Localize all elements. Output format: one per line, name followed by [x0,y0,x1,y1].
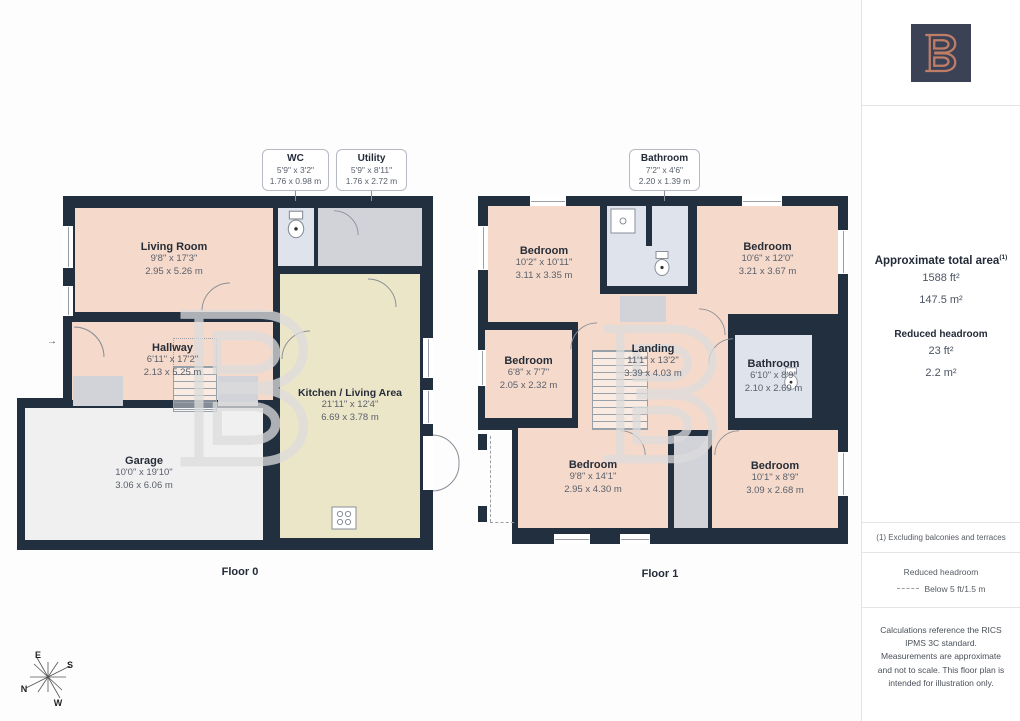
toilet-icon [652,250,672,278]
window [838,452,848,496]
reduced-headroom-m: 2.2 m² [862,362,1020,384]
floor0-label: Floor 0 [180,566,300,578]
callout-bathroom: Bathroom 7'2" x 4'6" 2.20 x 1.39 m [629,149,700,191]
callout-dims-metric: 1.76 x 2.72 m [346,176,398,187]
room-dims-metric: 3.06 x 6.06 m [115,480,173,493]
disclaimer: Calculations reference the RICS IPMS 3C … [862,608,1020,706]
room-name: Bathroom [745,358,803,370]
callout-wc: WC 5'9" x 3'2" 1.76 x 0.98 m [262,149,329,191]
double-door-arc [432,434,460,492]
room-bedroom-3: Bedroom 6'8" x 7'7" 2.05 x 2.32 m [485,330,572,418]
floor1-plan: Bedroom 10'2" x 10'11" 3.11 x 3.35 m Bed… [470,190,860,562]
room-dims-imperial: 9'8" x 17'3" [141,253,208,266]
room-name: Landing [624,343,682,355]
room-dims-metric: 3.21 x 3.67 m [739,266,797,279]
legend-text: Below 5 ft/1.5 m [925,584,986,594]
window [63,226,73,268]
logo-section [862,0,1020,106]
closet [73,376,123,406]
compass-n: N [21,684,28,694]
compass-w: W [54,698,63,708]
brand-logo [911,24,971,82]
window [63,286,73,316]
room-dims-metric: 2.95 x 5.26 m [141,266,208,279]
floor0-plan: Living Room 9'8" x 17'3" 2.95 x 5.26 m H… [15,190,460,562]
room-dims-metric: 3.09 x 2.68 m [746,485,804,498]
callout-dims-imperial: 5'9" x 8'11" [351,165,392,176]
callout-dims-metric: 1.76 x 0.98 m [270,176,322,187]
room-dims-metric: 6.69 x 3.78 m [298,412,402,425]
brand-logo-icon [923,32,959,74]
window [423,390,433,424]
room-dims-metric: 2.10 x 2.69 m [745,383,803,396]
room-dims-metric: 3.39 x 4.03 m [624,368,682,381]
reduced-headroom-legend: Reduced headroom Below 5 ft/1.5 m [862,553,1020,608]
room-name: Kitchen / Living Area [298,387,402,399]
room-living: Living Room 9'8" x 17'3" 2.95 x 5.26 m [75,208,273,312]
room-dims-imperial: 10'2" x 10'11" [516,257,573,270]
room-dims-imperial: 10'1" x 8'9" [746,472,804,485]
callout-connector [664,191,665,201]
callout-dims-imperial: 7'2" x 4'6" [646,165,683,176]
total-area-title: Approximate total area(1) [862,254,1020,267]
stove-icon [331,506,357,530]
room-dims-imperial: 9'8" x 14'1" [564,471,622,484]
room-name: Bedroom [746,460,804,472]
room-dims-imperial: 6'11" x 17'2" [144,354,202,367]
room-dims-imperial: 10'6" x 12'0" [739,253,797,266]
total-area-m: 147.5 m² [862,289,1020,311]
shower-icon [610,208,636,234]
room-name: Bedroom [564,459,622,471]
door-arc [73,326,105,358]
window [554,534,590,544]
room-bathroom-mid: Bathroom 6'10" x 8'9" 2.10 x 2.69 m [735,335,812,418]
callout-connector [295,191,296,201]
total-area-ft: 1588 ft² [862,267,1020,289]
room-dims-imperial: 6'10" x 8'9" [745,370,803,383]
door-arc [570,322,598,350]
window [838,230,848,274]
wall-stub [478,434,487,450]
room-dims-imperial: 21'11" x 12'4" [298,399,402,412]
legend-title: Reduced headroom [904,567,979,577]
window [423,338,433,378]
door-arc [333,210,359,236]
footnote-marker: (1) [999,254,1007,261]
floorplan-page: Living Room 9'8" x 17'3" 2.95 x 5.26 m H… [0,0,1020,721]
window [620,534,650,544]
window [530,196,566,206]
sidebar: Approximate total area(1) 1588 ft² 147.5… [861,0,1020,721]
room-dims-metric: 2.95 x 4.30 m [564,484,622,497]
brand-watermark [595,318,727,470]
room-name: Bedroom [500,355,558,367]
compass: E S N W [14,644,84,708]
dashed-line-sample [897,588,919,589]
room-name: Hallway [144,342,202,354]
room-dims-imperial: 11'1" x 13'2" [624,355,682,368]
callout-connector [371,191,372,201]
room-name: Bedroom [516,245,573,257]
window [478,226,488,270]
callout-name: Utility [358,153,386,165]
callout-name: Bathroom [641,153,688,165]
reduced-headroom-ft: 23 ft² [862,340,1020,362]
window [742,196,782,206]
room-dims-metric: 2.13 x 5.25 m [144,367,202,380]
floor1-label: Floor 1 [600,568,720,580]
footnote: (1) Excluding balconies and terraces [862,523,1020,553]
compass-s: S [67,660,73,670]
window [478,350,486,386]
area-summary: Approximate total area(1) 1588 ft² 147.5… [862,106,1020,523]
room-dims-imperial: 6'8" x 7'7" [500,367,558,380]
compass-e: E [35,650,41,660]
reduced-headroom-title: Reduced headroom [862,329,1020,340]
room-name: Garage [115,455,173,467]
room-name: Bedroom [739,241,797,253]
room-dims-imperial: 10'0" x 19'10" [115,467,173,480]
entry-arrow-icon: → [47,336,57,347]
callout-dims-imperial: 5'9" x 3'2" [277,165,314,176]
door-arc [367,278,397,308]
reduced-headroom-dash [490,436,491,522]
callout-utility: Utility 5'9" x 8'11" 1.76 x 2.72 m [336,149,407,191]
callout-name: WC [287,153,304,165]
callout-dims-metric: 2.20 x 1.39 m [639,176,691,187]
room-name: Living Room [141,241,208,253]
toilet-icon [285,210,307,240]
wall-divider [646,206,652,246]
reduced-headroom-dash [490,522,514,523]
room-dims-metric: 3.11 x 3.35 m [516,270,573,283]
room-dims-metric: 2.05 x 2.32 m [500,380,558,393]
wall-stub [478,506,487,522]
